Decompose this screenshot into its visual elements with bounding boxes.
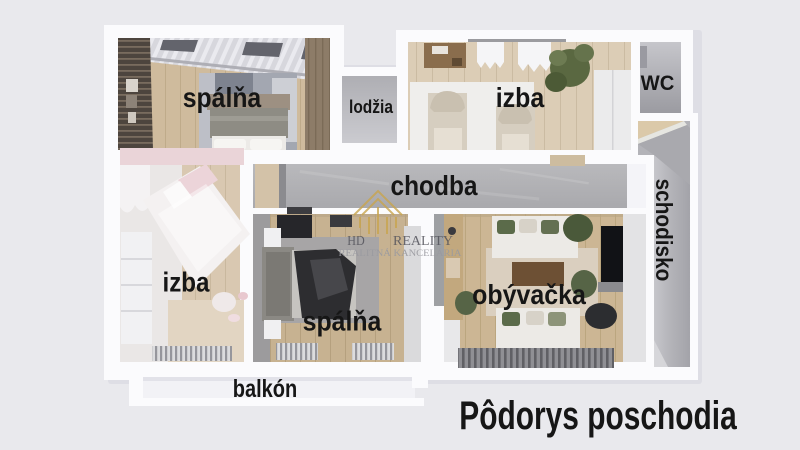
svg-text:spálňa: spálňa [303,306,382,337]
svg-text:lodžia: lodžia [349,97,394,117]
svg-text:Pôdorys poschodia: Pôdorys poschodia [459,394,737,438]
svg-text:obývačka: obývačka [472,279,586,310]
svg-text:chodba: chodba [391,170,478,201]
svg-text:izba: izba [163,267,210,298]
svg-text:schodisko: schodisko [651,179,677,282]
svg-text:balkón: balkón [233,375,298,403]
svg-text:REALITNÁ KANCELÁRIA: REALITNÁ KANCELÁRIA [339,248,463,258]
svg-text:izba: izba [496,82,545,113]
svg-text:HD: HD [347,234,365,249]
svg-text:WC: WC [641,72,675,95]
svg-text:REALITY: REALITY [393,234,453,249]
svg-text:spálňa: spálňa [183,82,262,113]
